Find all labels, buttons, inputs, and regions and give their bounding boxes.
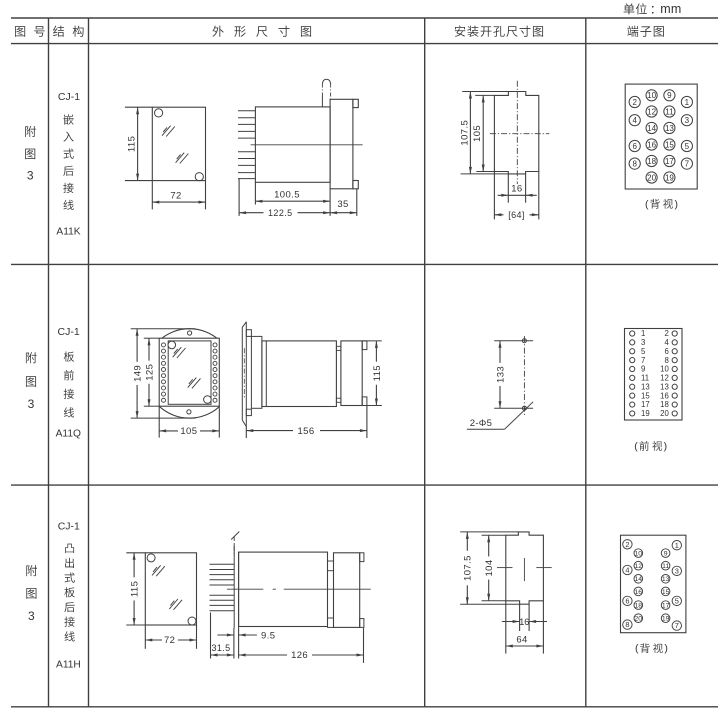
svg-text:7: 7 [675, 621, 679, 630]
svg-text:11: 11 [662, 563, 669, 570]
svg-text:mm: mm [660, 2, 681, 16]
svg-text:CJ-1: CJ-1 [58, 91, 80, 103]
svg-text:14: 14 [647, 124, 656, 133]
svg-text:11: 11 [665, 107, 674, 116]
svg-text:12: 12 [660, 374, 669, 383]
svg-text:4: 4 [664, 338, 669, 347]
svg-text:17: 17 [665, 157, 674, 166]
svg-text:12: 12 [647, 107, 656, 116]
svg-text:1: 1 [685, 98, 690, 107]
svg-text:[64]: [64] [508, 210, 525, 220]
svg-text:19: 19 [641, 409, 650, 418]
svg-text:15: 15 [665, 140, 674, 149]
svg-text:20: 20 [635, 616, 643, 623]
svg-text:8: 8 [625, 620, 629, 629]
svg-text:107.5: 107.5 [459, 120, 470, 146]
svg-text:17: 17 [662, 603, 670, 610]
svg-text:13: 13 [660, 382, 669, 391]
svg-text:16: 16 [660, 391, 669, 400]
svg-text:A11H: A11H [56, 660, 81, 671]
svg-text:6: 6 [632, 142, 637, 151]
svg-text:1: 1 [675, 541, 679, 550]
svg-text:10: 10 [635, 551, 643, 558]
svg-text:19: 19 [665, 173, 674, 182]
svg-text:3: 3 [685, 116, 690, 125]
svg-text:9: 9 [664, 551, 668, 558]
svg-text:107.5: 107.5 [463, 555, 474, 581]
svg-text:(: ( [635, 643, 639, 655]
svg-text:5: 5 [641, 347, 646, 356]
svg-text:64: 64 [516, 635, 527, 646]
svg-text:115: 115 [130, 581, 141, 597]
svg-text:16: 16 [647, 140, 656, 149]
svg-text:6: 6 [625, 597, 629, 606]
svg-text:31.5: 31.5 [211, 643, 230, 653]
svg-text:13: 13 [662, 576, 670, 583]
svg-text:2: 2 [625, 540, 629, 549]
svg-text:): ) [664, 643, 668, 655]
svg-text:4: 4 [625, 566, 629, 575]
svg-text:14: 14 [635, 576, 643, 583]
svg-text:20: 20 [660, 409, 669, 418]
svg-text:9: 9 [641, 365, 645, 374]
svg-text:16: 16 [519, 617, 529, 627]
svg-text:7: 7 [641, 356, 645, 365]
svg-text:16: 16 [635, 589, 643, 596]
svg-text:8: 8 [664, 356, 668, 365]
svg-text:15: 15 [662, 589, 670, 596]
svg-text:9: 9 [667, 91, 672, 100]
svg-text:2: 2 [632, 98, 637, 107]
svg-text:5: 5 [685, 142, 690, 151]
svg-text:19: 19 [662, 616, 670, 623]
svg-text:18: 18 [635, 603, 643, 610]
svg-text:(: ( [645, 198, 649, 210]
svg-text:CJ-1: CJ-1 [58, 521, 80, 533]
svg-text:3: 3 [28, 609, 35, 623]
svg-text:4: 4 [632, 116, 637, 125]
svg-text:17: 17 [641, 400, 650, 409]
svg-text:149: 149 [133, 365, 144, 382]
svg-text:10: 10 [647, 91, 656, 100]
svg-text:13: 13 [665, 124, 674, 133]
svg-text:105: 105 [180, 426, 197, 437]
svg-text:3: 3 [27, 169, 34, 183]
svg-text:2: 2 [664, 329, 668, 338]
svg-text:9.5: 9.5 [261, 630, 275, 641]
svg-text:7: 7 [685, 160, 690, 169]
svg-text:3: 3 [641, 338, 645, 347]
svg-text:): ) [674, 198, 678, 210]
svg-text:13: 13 [641, 382, 650, 391]
svg-text:A11Q: A11Q [56, 429, 81, 440]
svg-text:122.5: 122.5 [268, 208, 293, 218]
svg-text:72: 72 [164, 635, 175, 646]
svg-text:1: 1 [641, 329, 645, 338]
svg-text:8: 8 [632, 160, 637, 169]
svg-text:): ) [664, 440, 668, 452]
svg-text:133: 133 [495, 366, 506, 383]
svg-text:100.5: 100.5 [274, 190, 300, 201]
svg-text:105: 105 [472, 125, 483, 142]
svg-text:15: 15 [641, 391, 650, 400]
svg-text:35: 35 [337, 199, 348, 210]
svg-text:A11K: A11K [56, 226, 80, 237]
svg-text:10: 10 [660, 365, 669, 374]
svg-text:12: 12 [635, 563, 643, 570]
svg-text:156: 156 [297, 426, 314, 437]
svg-text:16: 16 [511, 183, 522, 194]
svg-text:72: 72 [170, 191, 181, 202]
svg-text:115: 115 [372, 365, 383, 381]
svg-text:126: 126 [291, 650, 308, 661]
svg-text:125: 125 [144, 364, 155, 381]
svg-text:CJ-1: CJ-1 [58, 326, 80, 338]
svg-text:3: 3 [28, 397, 35, 411]
svg-text:115: 115 [127, 136, 138, 152]
svg-text:18: 18 [647, 157, 656, 166]
svg-text:11: 11 [641, 374, 649, 383]
svg-text:18: 18 [660, 400, 669, 409]
svg-text:104: 104 [484, 559, 495, 576]
svg-text:2-Φ5: 2-Φ5 [470, 418, 493, 429]
svg-text:(: ( [634, 440, 638, 452]
svg-text:6: 6 [664, 347, 668, 356]
svg-text:3: 3 [675, 567, 679, 576]
svg-text:5: 5 [675, 597, 679, 606]
svg-text:20: 20 [647, 173, 656, 182]
